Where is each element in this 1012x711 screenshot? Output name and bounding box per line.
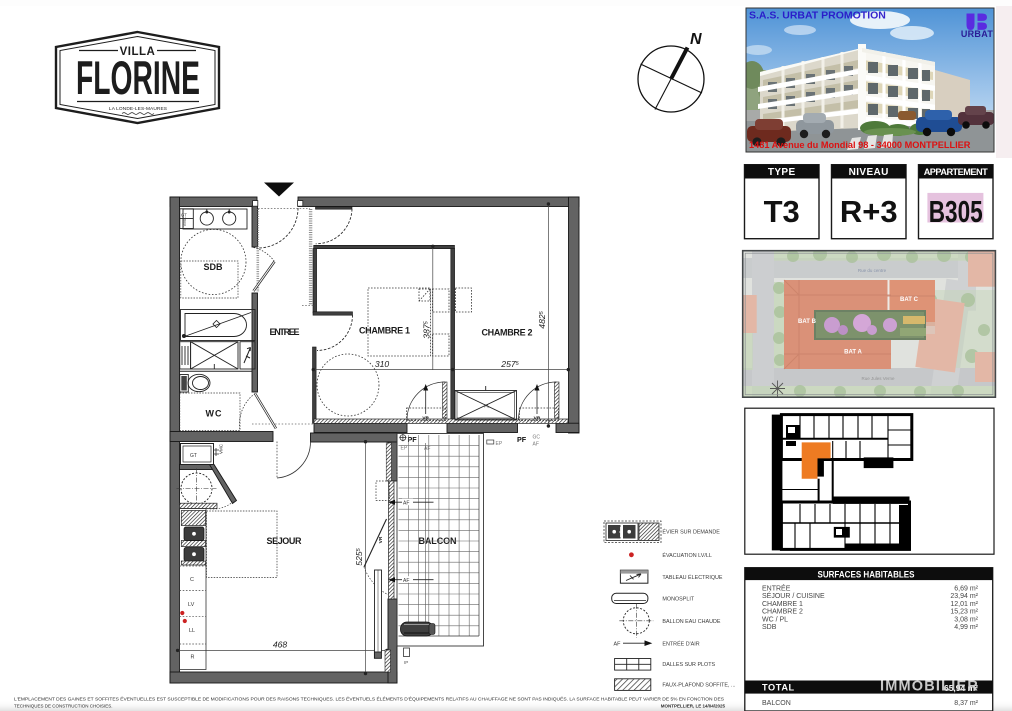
svg-text:BALCON: BALCON (762, 700, 791, 707)
svg-text:L'EMPLACEMENT DES GAINES ET SO: L'EMPLACEMENT DES GAINES ET SOFFITES ÉVE… (14, 696, 724, 702)
svg-text:B305: B305 (929, 194, 983, 229)
svg-text:PL: PL (484, 404, 490, 409)
svg-text:ENTRÉE D'AIR: ENTRÉE D'AIR (662, 640, 699, 647)
svg-text:468: 468 (273, 640, 288, 650)
svg-text:4,99 m²: 4,99 m² (954, 624, 978, 631)
svg-text:CHAMBRE 1: CHAMBRE 1 (359, 326, 410, 336)
svg-text:NIVEAU: NIVEAU (849, 167, 889, 178)
svg-text:S.A.S. URBAT PROMOTION: S.A.S. URBAT PROMOTION (749, 10, 886, 22)
svg-text:VR: VR (378, 536, 384, 543)
svg-text:VR: VR (534, 416, 541, 422)
svg-text:AF: AF (533, 442, 539, 448)
svg-text:LL: LL (189, 628, 195, 634)
svg-text:N: N (690, 31, 702, 48)
svg-text:SURFACES HABITABLES: SURFACES HABITABLES (818, 569, 915, 580)
svg-text:SÉJOUR / CUISINE: SÉJOUR / CUISINE (762, 591, 825, 600)
svg-text:MONTPELLIER, LE 14/04/2025: MONTPELLIER, LE 14/04/2025 (661, 704, 726, 709)
svg-text:SDB: SDB (762, 624, 777, 631)
svg-text:IP: IP (404, 660, 408, 665)
svg-text:C: C (190, 577, 194, 583)
svg-text:LV: LV (188, 602, 195, 608)
svg-text:CHAMBRE 1: CHAMBRE 1 (762, 601, 803, 608)
svg-text:TECHNIQUES DE CONSTRUCTION CHO: TECHNIQUES DE CONSTRUCTION CHOISIES. (14, 704, 113, 709)
svg-text:GC: GC (533, 435, 541, 441)
svg-text:ÉVACUATION LV/LL: ÉVACUATION LV/LL (662, 552, 711, 559)
svg-text:AF: AF (403, 500, 409, 506)
svg-text:1481 Avenue du Mondial 98 - 34: 1481 Avenue du Mondial 98 - 34000 MONTPE… (749, 140, 971, 150)
svg-text:VMC: VMC (182, 217, 187, 226)
svg-text:SEJOUR: SEJOUR (267, 536, 303, 546)
svg-text:T3: T3 (764, 194, 800, 229)
svg-text:23,94 m²: 23,94 m² (950, 593, 978, 600)
svg-text:GT: GT (190, 453, 197, 459)
svg-text:TOTAL: TOTAL (762, 683, 795, 693)
svg-text:CHAMBRE 2: CHAMBRE 2 (762, 609, 803, 616)
svg-text:R: R (191, 655, 195, 661)
svg-text:WC: WC (206, 409, 223, 419)
svg-text:FAUX-PLAFOND SOFFITE, ...: FAUX-PLAFOND SOFFITE, ... (662, 682, 735, 688)
svg-text:IMMOBILIER: IMMOBILIER (880, 679, 979, 695)
svg-text:URBAT: URBAT (961, 29, 994, 39)
svg-text:TABLEAU ÉLECTRIQUE: TABLEAU ÉLECTRIQUE (662, 574, 723, 581)
svg-text:310: 310 (375, 359, 390, 369)
svg-text:WC / PL: WC / PL (762, 616, 788, 623)
svg-text:SDB: SDB (204, 262, 224, 272)
svg-text:PF: PF (408, 435, 418, 444)
svg-text:BALLON EAU CHAUDE: BALLON EAU CHAUDE (662, 619, 721, 625)
svg-text:VR: VR (422, 416, 429, 422)
svg-text:ENTREE: ENTREE (270, 327, 300, 337)
svg-text:LA LONDE-LES-MAURES: LA LONDE-LES-MAURES (109, 106, 167, 112)
svg-text:PF: PF (517, 435, 527, 444)
svg-text:15,23 m²: 15,23 m² (950, 609, 978, 616)
svg-text:GT: GT (181, 213, 187, 218)
svg-text:DALLES SUR PLOTS: DALLES SUR PLOTS (662, 662, 715, 668)
svg-text:R+3: R+3 (840, 194, 898, 229)
svg-text:EP: EP (496, 441, 503, 447)
svg-text:12,01 m²: 12,01 m² (950, 601, 978, 608)
svg-text:AF: AF (403, 578, 409, 584)
svg-text:AF: AF (424, 446, 430, 452)
svg-text:ÉVIER SUR DEMANDE: ÉVIER SUR DEMANDE (662, 529, 720, 536)
svg-text:MONOSPLIT: MONOSPLIT (662, 596, 694, 602)
svg-text:6,69 m²: 6,69 m² (954, 586, 978, 593)
svg-text:FLORINE: FLORINE (76, 51, 200, 104)
svg-text:APPARTEMENT: APPARTEMENT (924, 167, 988, 177)
svg-text:8,37 m²: 8,37 m² (954, 700, 978, 707)
svg-text:CHAMBRE 2: CHAMBRE 2 (482, 328, 533, 338)
svg-text:VMC: VMC (219, 443, 224, 454)
svg-text:ENTRÉE: ENTRÉE (762, 584, 791, 593)
svg-text:3,08 m²: 3,08 m² (954, 616, 978, 623)
svg-text:AF: AF (614, 641, 622, 647)
svg-text:TYPE: TYPE (768, 167, 796, 178)
svg-text:EP: EP (401, 446, 408, 452)
